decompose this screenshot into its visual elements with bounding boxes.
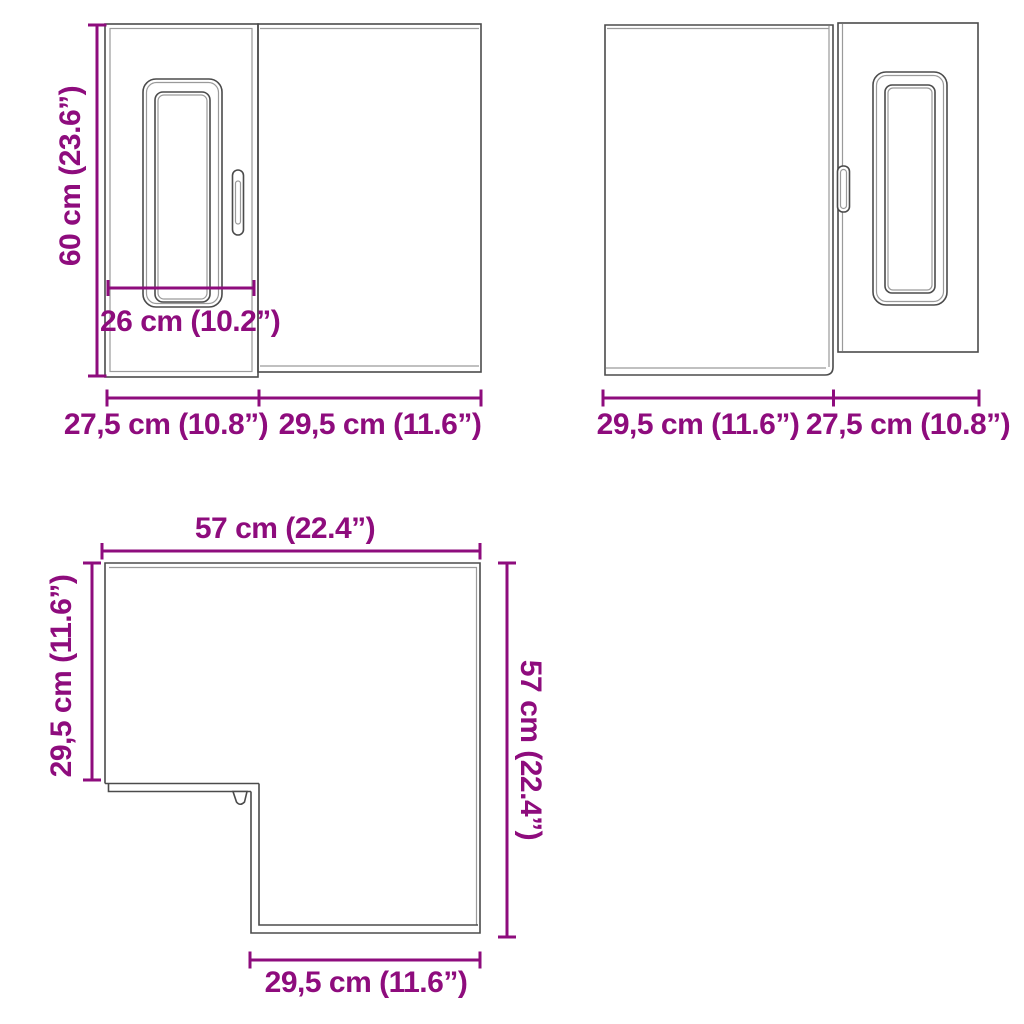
label-front-left-door-width: 26 cm (10.2”) [100,305,350,339]
label-front-left-height: 60 cm (23.6”) [54,66,88,286]
dim-plan-left [83,563,101,780]
cabinet-dimension-diagram: 60 cm (23.6”) 26 cm (10.2”) 27,5 cm (10.… [0,0,1024,1024]
label-plan-left-depth: 29,5 cm (11.6”) [45,566,79,786]
label-plan-bottom-width: 29,5 cm (11.6”) [236,966,496,1000]
plan-view [105,563,480,933]
front-right-door-handle [838,166,850,212]
label-plan-right-depth: 57 cm (22.4”) [513,640,547,860]
plan-outline [105,563,480,933]
label-plan-top-width: 57 cm (22.4”) [155,512,415,546]
dim-front-right-bottom [603,390,979,407]
plan-bottom-door-front [259,784,478,926]
plan-corner-handle [233,792,247,805]
front-left-door-recess-inner [155,92,210,302]
front-left-door-recess-line2 [147,83,219,304]
front-right-door-recess-outer [873,72,947,305]
plan-inner-lines [109,568,477,926]
label-front-left-bottom-right: 29,5 cm (11.6”) [250,408,510,442]
dim-front-left-bottom [107,390,481,407]
diagram-line-art [0,0,1024,1024]
front-right-door-recess-line4 [888,88,932,290]
front-right-side-panel-inner-lines [606,26,829,368]
front-right-door-recess-inner [885,85,935,293]
front-right-side-panel [605,25,833,375]
front-right-view [605,23,978,375]
dim-front-left-door-width [108,280,254,296]
label-front-right-bottom-right: 27,5 cm (10.8”) [778,408,1024,442]
front-left-door-recess-line4 [158,95,207,299]
front-left-door-handle [233,170,244,235]
front-right-door-recess-line2 [877,76,944,302]
plan-left-door-front [105,784,259,792]
